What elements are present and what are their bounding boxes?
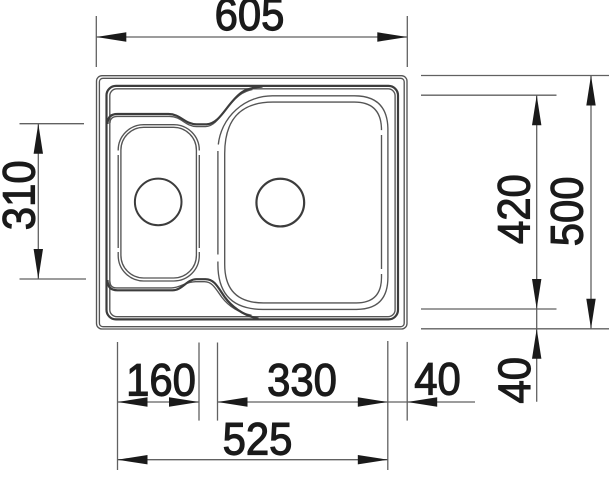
svg-text:420: 420 <box>489 174 540 244</box>
svg-text:40: 40 <box>489 357 540 404</box>
svg-text:525: 525 <box>223 414 293 465</box>
svg-text:160: 160 <box>126 355 196 406</box>
svg-text:330: 330 <box>267 355 337 406</box>
svg-text:40: 40 <box>414 354 461 405</box>
svg-text:605: 605 <box>215 0 285 40</box>
svg-text:310: 310 <box>0 160 45 230</box>
svg-text:500: 500 <box>542 176 593 246</box>
